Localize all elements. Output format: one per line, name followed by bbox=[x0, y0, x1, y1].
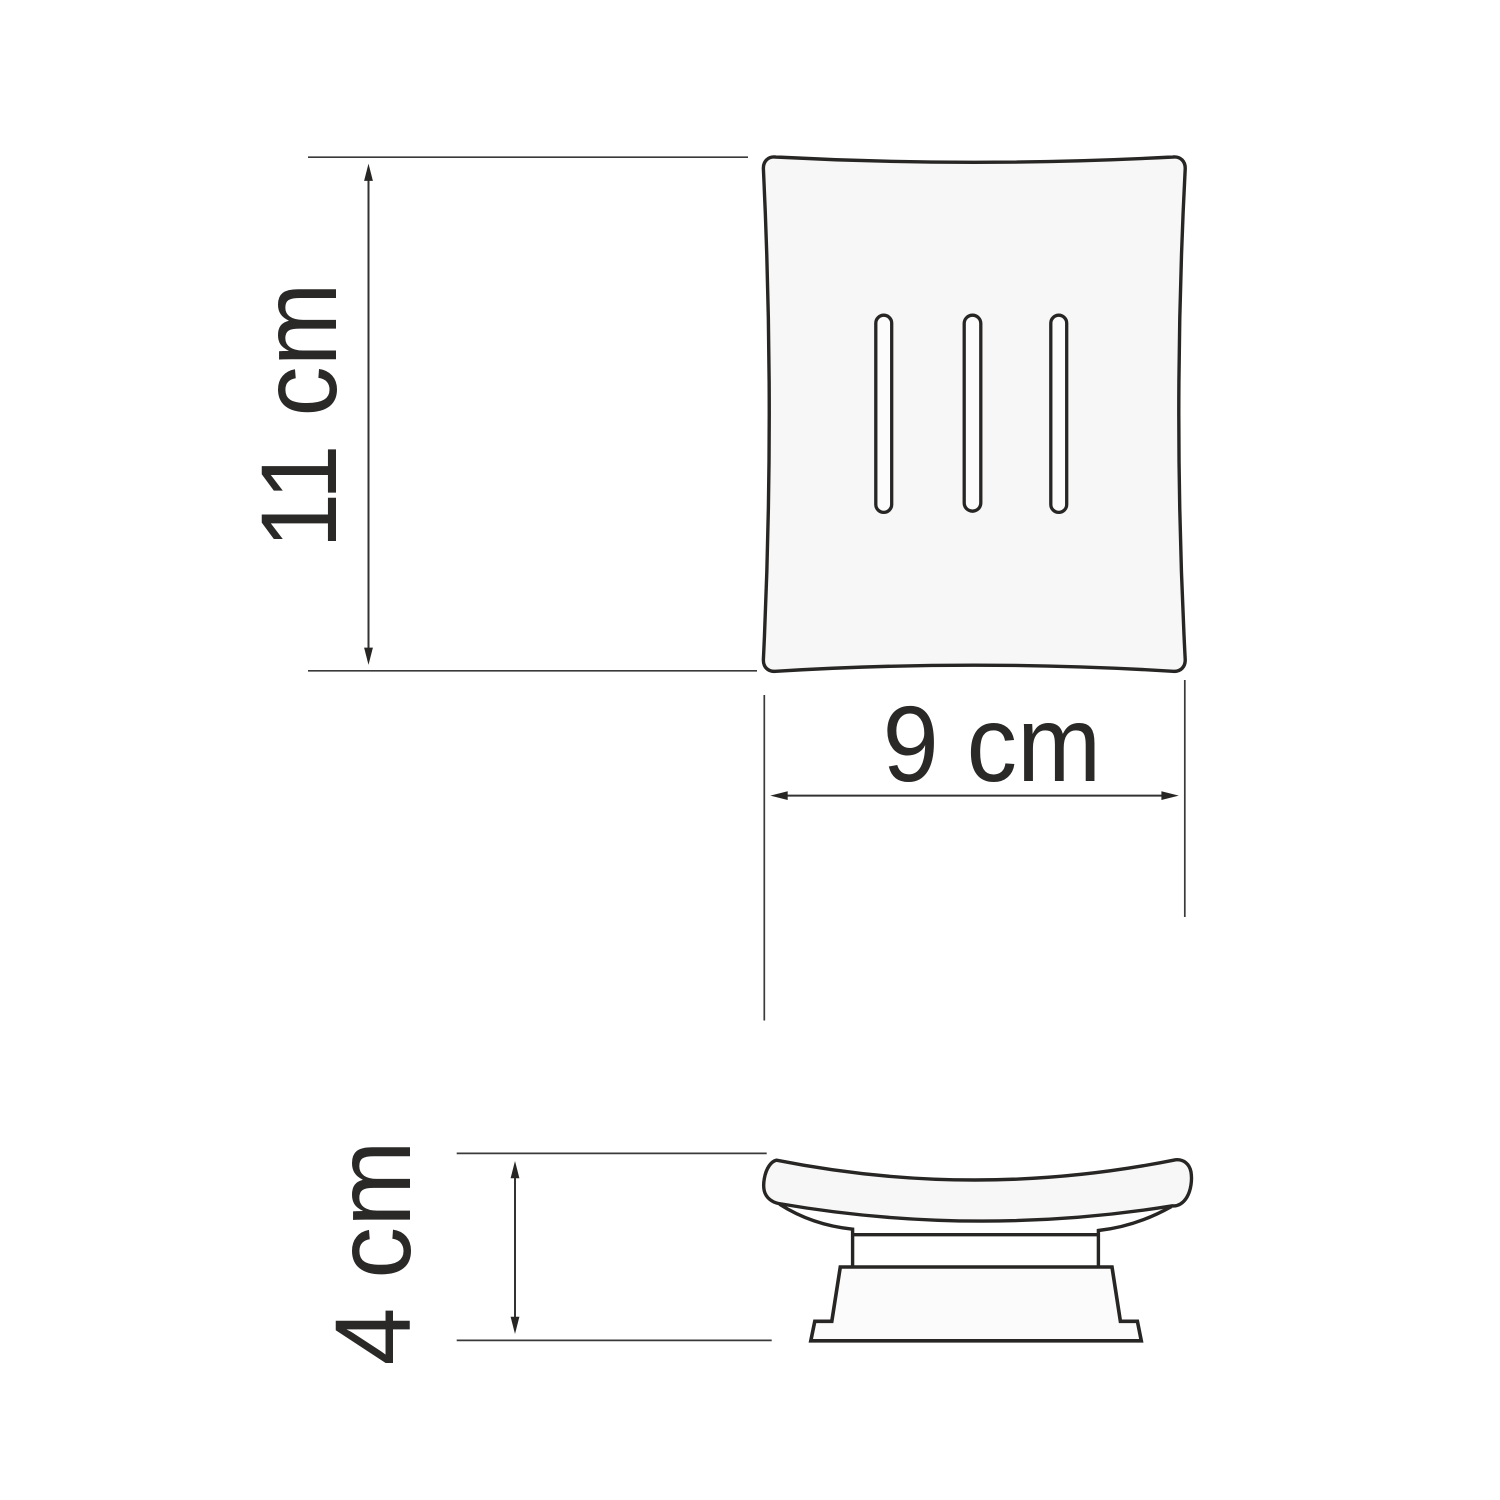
svg-text:4 cm: 4 cm bbox=[312, 1140, 433, 1365]
svg-text:11 cm: 11 cm bbox=[238, 283, 359, 549]
svg-text:9 cm: 9 cm bbox=[883, 683, 1102, 804]
